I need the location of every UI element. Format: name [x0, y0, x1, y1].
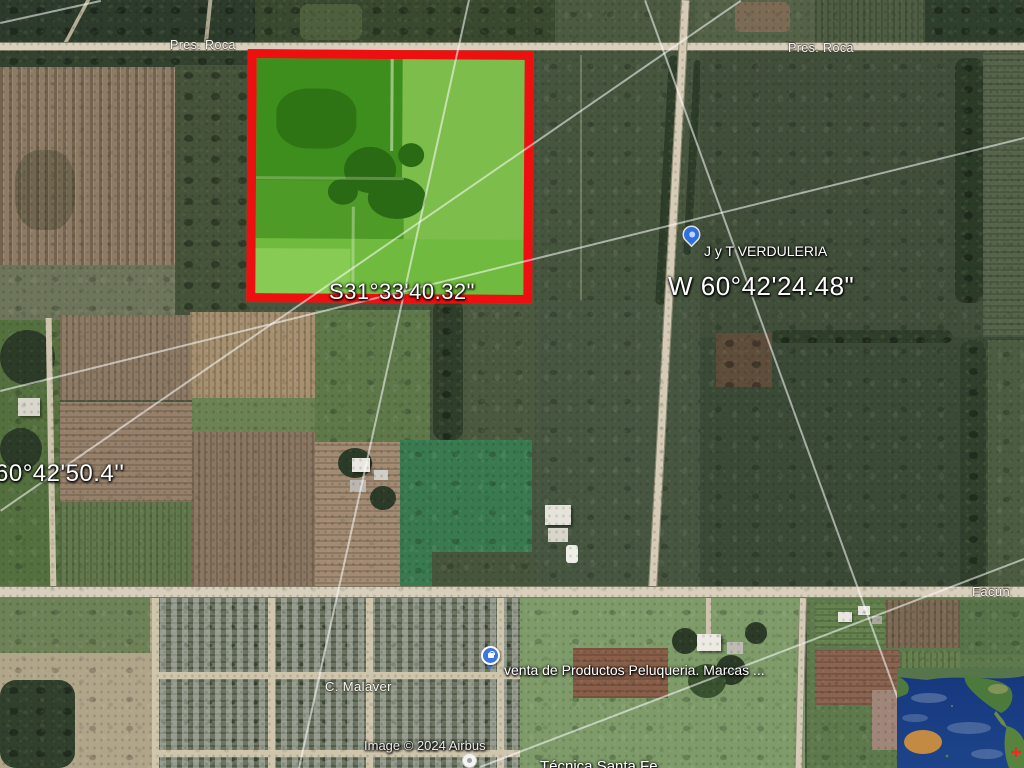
australia [904, 730, 942, 754]
supply-pile [566, 545, 578, 563]
farm-building [18, 398, 40, 416]
coordinate-west: W 60°42'24.48" [668, 271, 854, 302]
attribution-label: Image © 2024 Airbus [364, 738, 486, 753]
field-boundary [580, 55, 582, 300]
parcel-tree-cluster [398, 143, 424, 167]
farm-building [350, 480, 366, 492]
plowed-field [190, 312, 315, 400]
field-shadow [15, 150, 75, 230]
tree-cluster [672, 628, 698, 654]
farm-building [374, 470, 388, 480]
road-label-pres-roca-left: Pres. Roca [170, 38, 236, 52]
field-patch [315, 310, 430, 442]
farm-building [838, 612, 852, 622]
plowed-field [60, 315, 190, 400]
tree-line [433, 300, 463, 440]
pin-dot [467, 758, 472, 763]
field-patch [175, 65, 250, 320]
field-patch [988, 340, 1024, 590]
field-patch [735, 2, 790, 32]
cloud [902, 714, 928, 722]
town-street-malaver [152, 672, 520, 679]
field-patch [0, 265, 175, 320]
place-label-venta[interactable]: venta de Productos Peluqueria. Marcas ..… [504, 662, 765, 678]
cloud [911, 693, 947, 703]
garden-plot [960, 600, 1024, 655]
town-street [268, 598, 275, 768]
earth-overview-map[interactable] [897, 668, 1024, 768]
farm-building [548, 528, 568, 542]
field-patch [555, 0, 695, 46]
place-dot-icon[interactable] [462, 753, 477, 768]
pin-dot [687, 230, 695, 238]
forest-patch [925, 0, 1024, 46]
field-patch [983, 52, 1024, 337]
field-patch [192, 398, 315, 432]
field-patch [535, 300, 700, 590]
parcel-field-shadow [276, 88, 356, 148]
farm-building [545, 505, 571, 525]
road-label-c-malaver: C. Malaver [325, 679, 392, 694]
town-street [497, 598, 504, 768]
field-patch [432, 552, 532, 590]
farm-building [697, 634, 721, 651]
great-plains [988, 684, 1008, 694]
tree-cluster [370, 486, 396, 510]
brown-patch [716, 333, 772, 387]
road-label-facundo: Facun [972, 584, 1010, 599]
field-patch [815, 0, 925, 46]
tree-cluster [745, 622, 767, 644]
field-patch [300, 4, 362, 40]
farm-building [727, 642, 743, 654]
tree-cluster [0, 680, 75, 768]
place-label-verduleria[interactable]: J y T VERDULERIA [704, 243, 827, 259]
tree-line [960, 340, 986, 590]
parcel-tree-cluster [368, 177, 426, 219]
coordinate-south: S31°33'40.32" [329, 279, 475, 305]
cloud [947, 722, 991, 734]
islands [951, 705, 953, 707]
store-pin-icon[interactable] [481, 646, 500, 665]
road-pres-roca [0, 42, 1024, 51]
tree-line [772, 330, 952, 343]
driveway [706, 598, 711, 636]
pink-lot [872, 690, 900, 750]
cloud [971, 749, 1003, 759]
parcel-path [390, 59, 394, 151]
road-label-pres-roca-right: Pres. Roca [788, 41, 854, 55]
crop-rows-field [60, 502, 192, 590]
road-bottom [0, 586, 1024, 598]
plowed-field [192, 432, 315, 590]
highlighted-parcel-outline[interactable] [246, 49, 534, 304]
town-street [152, 598, 159, 768]
new-zealand [946, 755, 949, 758]
coordinate-west-left: 60°42'50.4'' [0, 460, 124, 488]
field-patch [0, 598, 150, 653]
field-patch [463, 300, 535, 445]
satellite-map[interactable]: Pres. Roca Pres. Roca C. Malaver Facun J… [0, 0, 1024, 768]
tree-line [955, 58, 983, 303]
parcel-tree-cluster [328, 179, 358, 205]
bag-icon [488, 653, 494, 658]
place-label-school[interactable]: Técnica Santa Fe [540, 758, 658, 768]
